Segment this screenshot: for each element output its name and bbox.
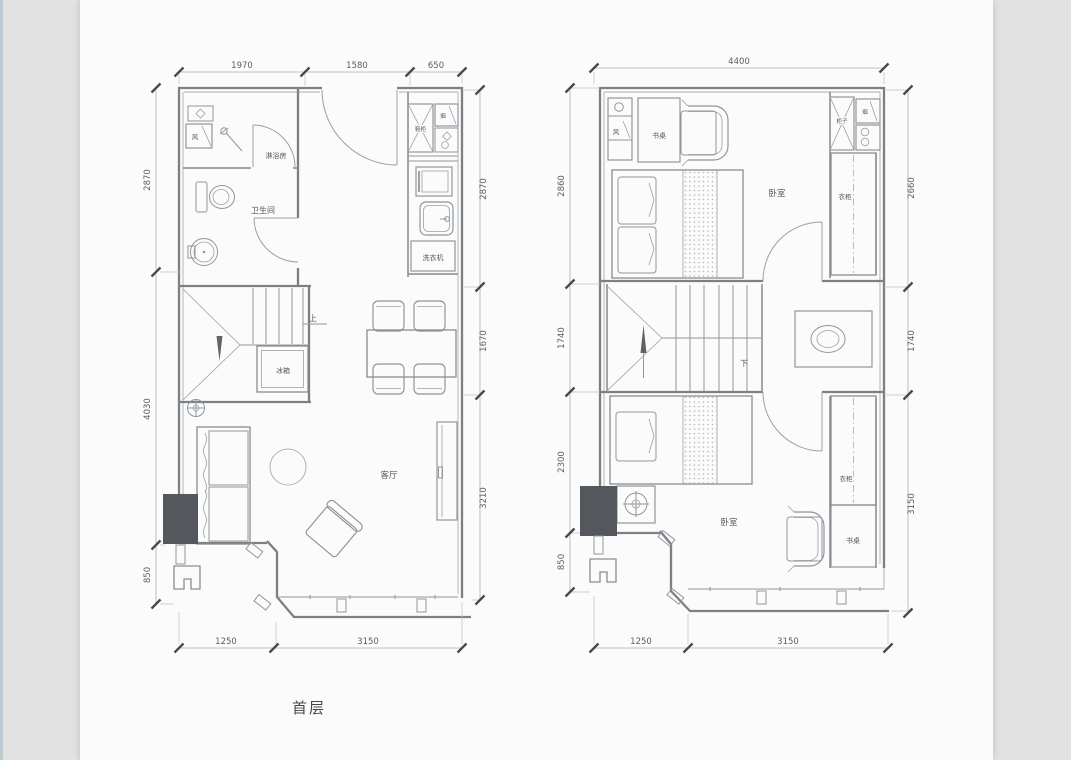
living-room: 客厅 (197, 422, 457, 559)
left-plan-doors (253, 90, 397, 262)
toilet-icon (196, 182, 235, 212)
desk-chair-bottom (787, 506, 824, 572)
flue-box-right: 烟 (856, 99, 880, 123)
bed-top (612, 170, 743, 278)
wardrobe-bottom-label: 衣柜 (840, 474, 854, 483)
dim-label: 3150 (777, 637, 799, 647)
bedroom-top-door-arc (763, 222, 822, 281)
wardrobe-top: 衣柜 (831, 153, 876, 275)
dim-label: 1670 (479, 330, 489, 352)
toilet-middle (795, 311, 872, 367)
desk-bottom: 书桌 (831, 505, 876, 567)
wardrobe-top-label: 衣柜 (839, 192, 853, 201)
shower-door-arc (253, 125, 295, 167)
round-rug (270, 449, 306, 485)
dim-label: 1250 (215, 637, 237, 647)
bathroom-door-arc (254, 218, 298, 262)
vent-box: 风 (186, 124, 212, 148)
floor-drain-icon (188, 400, 205, 417)
dim-label: 850 (143, 567, 153, 583)
tv-bench (437, 422, 457, 520)
stairs-arrow-down (217, 336, 223, 361)
sofa (197, 427, 250, 544)
dim-label: 1740 (907, 330, 917, 352)
shoe-cabinet-label: 鞋柜 (415, 125, 427, 133)
fridge-label: 冰箱 (276, 366, 290, 375)
shower-room-label: 淋浴房 (266, 151, 287, 160)
vent-label: 风 (613, 128, 620, 136)
bed-bottom (610, 396, 752, 484)
floorplan-drawing: 风 淋浴房 卫生间 (0, 0, 1071, 760)
floor-title: 首层 (292, 699, 326, 717)
exhaust-fan-icon (617, 486, 655, 523)
dim-label: 1580 (346, 61, 368, 71)
dim-label: 4400 (728, 57, 750, 67)
cabinet-label: 柜子 (836, 117, 848, 125)
stairs-arrow-up (641, 325, 647, 353)
dining-chair (373, 301, 404, 331)
right-plan-doors (763, 222, 822, 451)
bedroom-top: 风 书桌 卧室 (608, 97, 880, 278)
desk-top-label: 书桌 (652, 131, 666, 140)
bedroom-bottom: 卧室 书桌 衣柜 (580, 396, 876, 604)
flue-label: 烟 (862, 108, 868, 116)
living-room-label: 客厅 (380, 470, 398, 481)
basin-icon (188, 239, 218, 266)
kitchen-column: 鞋柜 烟 (408, 104, 458, 271)
dim-label: 1740 (557, 327, 567, 349)
bathroom-label: 卫生间 (251, 205, 275, 215)
shower-head-icon (220, 128, 242, 151)
dark-column-block (580, 486, 617, 536)
dim-label: 4030 (143, 398, 153, 420)
cabinet-box: 柜子 (830, 97, 854, 150)
basin-box-right (856, 125, 880, 150)
dining-chair (414, 301, 445, 331)
right-plan-dimensions: 4400 2860 1740 2300 850 2660 1740 3150 (557, 57, 917, 653)
bedroom-bottom-door-arc (763, 392, 822, 451)
dim-label: 3150 (357, 637, 379, 647)
flue-box: 烟 (435, 104, 458, 126)
left-plan-balcony (163, 494, 426, 612)
lounge-chair (303, 499, 364, 560)
dim-label: 2870 (479, 178, 489, 200)
bathroom: 卫生间 (188, 182, 275, 266)
dim-label: 2660 (907, 177, 917, 199)
dim-label: 2300 (557, 451, 567, 473)
bedroom-top-label: 卧室 (768, 188, 786, 199)
stairs-up-label: 上 (309, 314, 317, 323)
right-plan-balcony (590, 531, 846, 605)
desk-bottom-label: 书桌 (846, 536, 860, 545)
dim-label: 2870 (143, 169, 153, 191)
oven-icon (416, 167, 452, 196)
desk-chair-top (681, 100, 728, 166)
dim-label: 1250 (630, 637, 652, 647)
dark-column-block (163, 494, 198, 544)
dim-label: 3150 (907, 493, 917, 515)
fridge: 冰箱 (257, 346, 308, 392)
shower-room: 风 淋浴房 (186, 106, 287, 160)
stairs-left-plan: 上 冰箱 (183, 288, 327, 417)
washing-machine-label: 洗衣机 (423, 253, 444, 262)
dim-label: 3210 (479, 487, 489, 509)
entry-door-arc (322, 90, 397, 165)
dining-chair (414, 364, 445, 394)
wardrobe-bottom: 衣柜 (831, 396, 876, 505)
vent-column: 风 (608, 98, 632, 160)
vent-label: 风 (192, 133, 199, 141)
dim-label: 650 (428, 61, 444, 71)
kitchen-sink-small (435, 128, 458, 152)
left-plan-dimensions: 1970 1580 650 2870 4030 850 2870 1670 32… (143, 61, 489, 653)
dim-label: 850 (557, 554, 567, 570)
desk-top: 书桌 (638, 98, 680, 162)
kitchen-sink-big (420, 202, 453, 235)
washing-machine: 洗衣机 (411, 241, 455, 271)
flue-label: 烟 (440, 112, 446, 120)
dining-chair (373, 364, 404, 394)
bedroom-bottom-label: 卧室 (720, 517, 738, 528)
shoe-cabinet: 鞋柜 (408, 104, 433, 152)
right-floor-plan: 风 书桌 卧室 (557, 57, 917, 653)
dining-table (367, 330, 456, 377)
left-floor-plan: 风 淋浴房 卫生间 (143, 61, 489, 653)
stairs-down-label: 下 (740, 359, 748, 368)
dim-label: 1970 (231, 61, 253, 71)
dining-set (367, 301, 456, 394)
dim-label: 2860 (557, 175, 567, 197)
stairs-right-plan: 下 (608, 285, 872, 391)
